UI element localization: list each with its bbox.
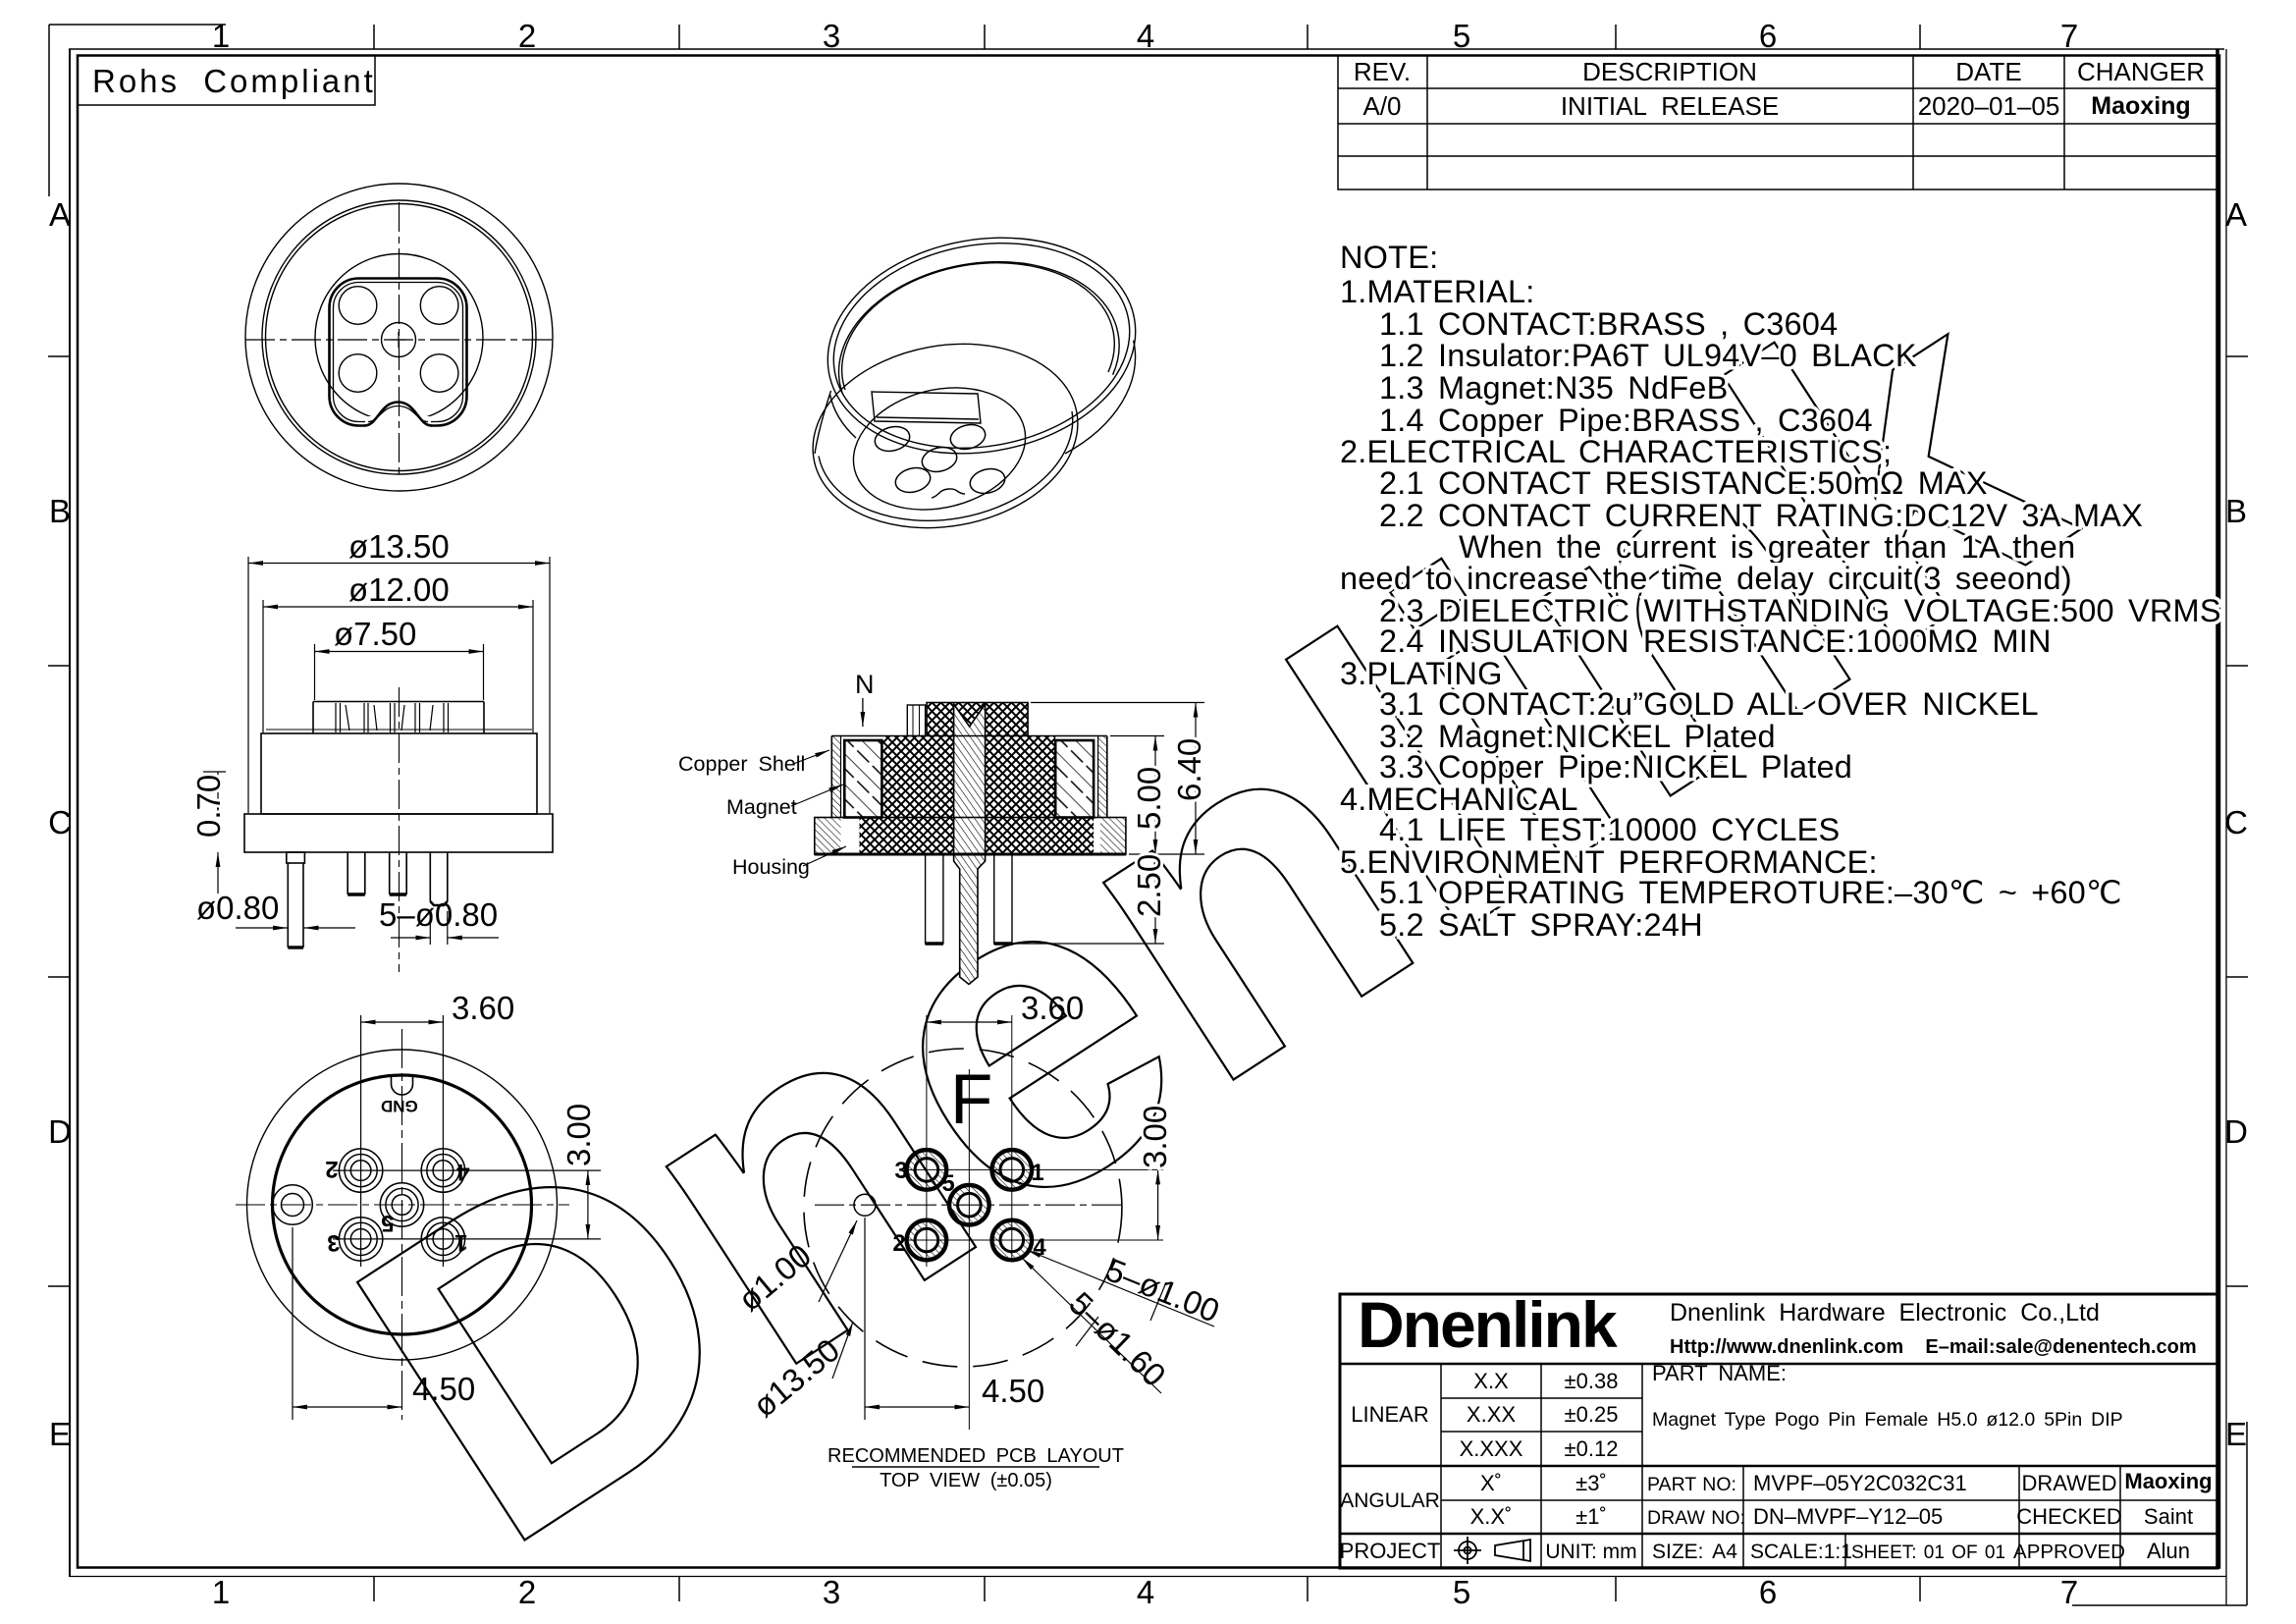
svg-text:F: F bbox=[950, 1061, 992, 1139]
svg-text:PART NO:: PART NO: bbox=[1647, 1474, 1736, 1495]
svg-text:3.60: 3.60 bbox=[1021, 990, 1084, 1026]
svg-text:REV.: REV. bbox=[1354, 57, 1411, 86]
svg-text:1.3 Magnet:N35 NdFeB: 1.3 Magnet:N35 NdFeB bbox=[1379, 370, 1728, 406]
svg-text:TOP VIEW (±0.05): TOP VIEW (±0.05) bbox=[880, 1470, 1052, 1491]
svg-text:INITIAL RELEASE: INITIAL RELEASE bbox=[1561, 91, 1779, 121]
svg-text:D: D bbox=[2224, 1113, 2248, 1150]
svg-text:2: 2 bbox=[518, 18, 536, 54]
svg-text:5.00: 5.00 bbox=[1131, 767, 1167, 830]
svg-text:ø7.50: ø7.50 bbox=[334, 616, 416, 652]
svg-text:2: 2 bbox=[892, 1230, 905, 1257]
svg-text:Maoxing: Maoxing bbox=[2124, 1469, 2212, 1493]
svg-text:5.2 SALT SPRAY:24H: 5.2 SALT SPRAY:24H bbox=[1379, 907, 1703, 943]
svg-text:ø0.80: ø0.80 bbox=[196, 890, 279, 926]
svg-text:A: A bbox=[49, 196, 71, 233]
svg-text:Magnet: Magnet bbox=[726, 795, 797, 819]
svg-text:4: 4 bbox=[456, 1159, 470, 1185]
svg-text:E: E bbox=[49, 1416, 71, 1452]
svg-text:DRAWED: DRAWED bbox=[2022, 1471, 2117, 1495]
svg-text:5–ø0.80: 5–ø0.80 bbox=[379, 896, 498, 933]
svg-text:ø13.50: ø13.50 bbox=[348, 528, 450, 565]
svg-text:Rohs Compliant: Rohs Compliant bbox=[92, 63, 376, 99]
svg-text:Dnenlink: Dnenlink bbox=[1358, 1288, 1618, 1361]
svg-text:LINEAR: LINEAR bbox=[1351, 1402, 1428, 1427]
svg-text:2.ELECTRICAL CHARACTERISTICS;: 2.ELECTRICAL CHARACTERISTICS; bbox=[1340, 434, 1892, 469]
svg-text:C: C bbox=[48, 804, 72, 840]
svg-text:B: B bbox=[49, 493, 71, 529]
svg-text:1.2 Insulator:PA6T UL94V–0 BL: 1.2 Insulator:PA6T UL94V–0 BLACK bbox=[1379, 338, 1917, 373]
svg-text:X˚: X˚ bbox=[1480, 1471, 1502, 1495]
svg-text:3: 3 bbox=[823, 18, 840, 54]
svg-text:Maoxing: Maoxing bbox=[2091, 92, 2190, 120]
svg-text:DRAW NO:: DRAW NO: bbox=[1647, 1507, 1745, 1529]
svg-text:1.1 CONTACT:BRASS , C3604: 1.1 CONTACT:BRASS , C3604 bbox=[1379, 306, 1838, 342]
svg-text:6: 6 bbox=[1759, 1574, 1777, 1610]
svg-text:SCALE:1:1: SCALE:1:1 bbox=[1750, 1541, 1852, 1563]
svg-text:3.3 Copper Pipe:NICKEL Plated: 3.3 Copper Pipe:NICKEL Plated bbox=[1379, 749, 1852, 785]
svg-text:±3˚: ±3˚ bbox=[1575, 1471, 1607, 1495]
svg-text:UNIT: mm: UNIT: mm bbox=[1545, 1541, 1636, 1563]
svg-text:±1˚: ±1˚ bbox=[1575, 1504, 1607, 1529]
svg-text:CHECKED: CHECKED bbox=[2016, 1504, 2122, 1529]
svg-text:3: 3 bbox=[327, 1229, 340, 1256]
svg-text:2.1 CONTACT RESISTANCE:50mΩ MA: 2.1 CONTACT RESISTANCE:50mΩ MAX bbox=[1379, 465, 1988, 501]
svg-text:4: 4 bbox=[1137, 18, 1154, 54]
svg-text:4.1 LIFE TEST:10000 CYCLES: 4.1 LIFE TEST:10000 CYCLES bbox=[1379, 812, 1840, 847]
svg-text:1: 1 bbox=[212, 18, 230, 54]
svg-text:ø12.00: ø12.00 bbox=[348, 571, 450, 608]
svg-text:DATE: DATE bbox=[1955, 57, 2021, 86]
svg-text:3.00: 3.00 bbox=[561, 1104, 597, 1166]
svg-text:A/0: A/0 bbox=[1362, 91, 1401, 121]
svg-text:X.X˚: X.X˚ bbox=[1470, 1504, 1513, 1529]
svg-text:GND: GND bbox=[381, 1097, 418, 1115]
svg-text:5: 5 bbox=[1453, 18, 1470, 54]
svg-text:1.4 Copper Pipe:BRASS , C3604: 1.4 Copper Pipe:BRASS , C3604 bbox=[1379, 403, 1873, 438]
svg-text:5: 5 bbox=[1453, 1574, 1470, 1610]
svg-text:2: 2 bbox=[325, 1156, 338, 1182]
svg-text:NOTE:: NOTE: bbox=[1340, 240, 1438, 275]
svg-text:X.X: X.X bbox=[1473, 1369, 1509, 1393]
svg-text:N: N bbox=[855, 670, 875, 699]
svg-text:±0.12: ±0.12 bbox=[1565, 1436, 1619, 1461]
svg-text:Magnet Type Pogo Pin Female H5: Magnet Type Pogo Pin Female H5.0 ø12.0 5… bbox=[1652, 1409, 2123, 1431]
svg-text:2.4 INSULATION RESISTANCE:1000: 2.4 INSULATION RESISTANCE:1000MΩ MIN bbox=[1379, 623, 2052, 659]
svg-text:1: 1 bbox=[1031, 1160, 1043, 1186]
svg-text:4.50: 4.50 bbox=[982, 1373, 1044, 1409]
svg-text:PART NAME:: PART NAME: bbox=[1652, 1361, 1787, 1385]
svg-text:B: B bbox=[2225, 493, 2247, 529]
svg-text:DN–MVPF–Y12–05: DN–MVPF–Y12–05 bbox=[1753, 1504, 1943, 1529]
svg-text:1.MATERIAL:: 1.MATERIAL: bbox=[1340, 274, 1534, 309]
svg-text:X.XX: X.XX bbox=[1467, 1402, 1516, 1427]
svg-text:RECOMMENDED PCB LAYOUT: RECOMMENDED PCB LAYOUT bbox=[828, 1445, 1124, 1467]
svg-text:6.40: 6.40 bbox=[1171, 738, 1207, 801]
svg-text:7: 7 bbox=[2060, 18, 2078, 54]
svg-text:APPROVED: APPROVED bbox=[2013, 1541, 2125, 1563]
svg-text:E: E bbox=[2225, 1416, 2247, 1452]
svg-text:6: 6 bbox=[1759, 18, 1777, 54]
svg-text:0.70: 0.70 bbox=[190, 775, 227, 838]
svg-text:3.60: 3.60 bbox=[452, 990, 514, 1026]
svg-text:Alun: Alun bbox=[2147, 1539, 2190, 1563]
svg-text:CHANGER: CHANGER bbox=[2077, 57, 2205, 86]
svg-text:±0.25: ±0.25 bbox=[1565, 1402, 1619, 1427]
svg-text:D: D bbox=[48, 1113, 72, 1150]
svg-text:Http://www.dnenlink.com E–m: Http://www.dnenlink.com E–mail:sale@dene… bbox=[1670, 1336, 2197, 1358]
svg-text:Saint: Saint bbox=[2144, 1504, 2193, 1529]
svg-text:C: C bbox=[2224, 804, 2248, 840]
svg-text:5.1 OPERATING TEMPEROTURE:–30℃: 5.1 OPERATING TEMPEROTURE:–30℃ ~ +60℃ bbox=[1379, 875, 2122, 910]
svg-text:need to increase the time dela: need to increase the time delay circuit(… bbox=[1340, 561, 2072, 596]
svg-text:PROJECT: PROJECT bbox=[1340, 1539, 1441, 1563]
svg-text:3.00: 3.00 bbox=[1137, 1106, 1173, 1168]
svg-text:3.1 CONTACT:2u”GOLD ALL OVER N: 3.1 CONTACT:2u”GOLD ALL OVER NICKEL bbox=[1379, 686, 2039, 722]
svg-text:2: 2 bbox=[518, 1574, 536, 1610]
svg-text:2.50: 2.50 bbox=[1131, 854, 1167, 917]
svg-text:X.XXX: X.XXX bbox=[1460, 1436, 1523, 1461]
svg-text:2.2 CONTACT CURRENT RATING:DC1: 2.2 CONTACT CURRENT RATING:DC12V 3A MAX bbox=[1379, 498, 2143, 533]
svg-text:5: 5 bbox=[941, 1170, 954, 1197]
svg-text:SIZE: A4: SIZE: A4 bbox=[1652, 1541, 1737, 1563]
svg-text:ANGULAR: ANGULAR bbox=[1340, 1489, 1440, 1512]
svg-text:4: 4 bbox=[1137, 1574, 1154, 1610]
svg-text:SHEET: 01 OF 01: SHEET: 01 OF 01 bbox=[1851, 1543, 2005, 1563]
svg-text:1: 1 bbox=[212, 1574, 230, 1610]
svg-text:DESCRIPTION: DESCRIPTION bbox=[1582, 57, 1757, 86]
svg-text:5: 5 bbox=[381, 1210, 394, 1236]
svg-text:Dnenlink Hardware Electronic C: Dnenlink Hardware Electronic Co.,Ltd bbox=[1670, 1299, 2100, 1326]
svg-text:3: 3 bbox=[894, 1158, 907, 1184]
svg-text:When the current is greater th: When the current is greater than 1A then bbox=[1459, 529, 2075, 565]
svg-text:1: 1 bbox=[454, 1229, 467, 1256]
svg-text:±0.38: ±0.38 bbox=[1565, 1369, 1619, 1393]
svg-text:2020–01–05: 2020–01–05 bbox=[1918, 91, 2060, 121]
svg-text:4.50: 4.50 bbox=[412, 1371, 475, 1407]
svg-text:7: 7 bbox=[2060, 1574, 2078, 1610]
svg-text:Housing: Housing bbox=[732, 855, 810, 879]
svg-text:3: 3 bbox=[823, 1574, 840, 1610]
svg-text:MVPF–05Y2C032C31: MVPF–05Y2C032C31 bbox=[1753, 1471, 1967, 1495]
svg-text:Copper Shell: Copper Shell bbox=[678, 752, 805, 776]
svg-text:A: A bbox=[2225, 196, 2247, 233]
